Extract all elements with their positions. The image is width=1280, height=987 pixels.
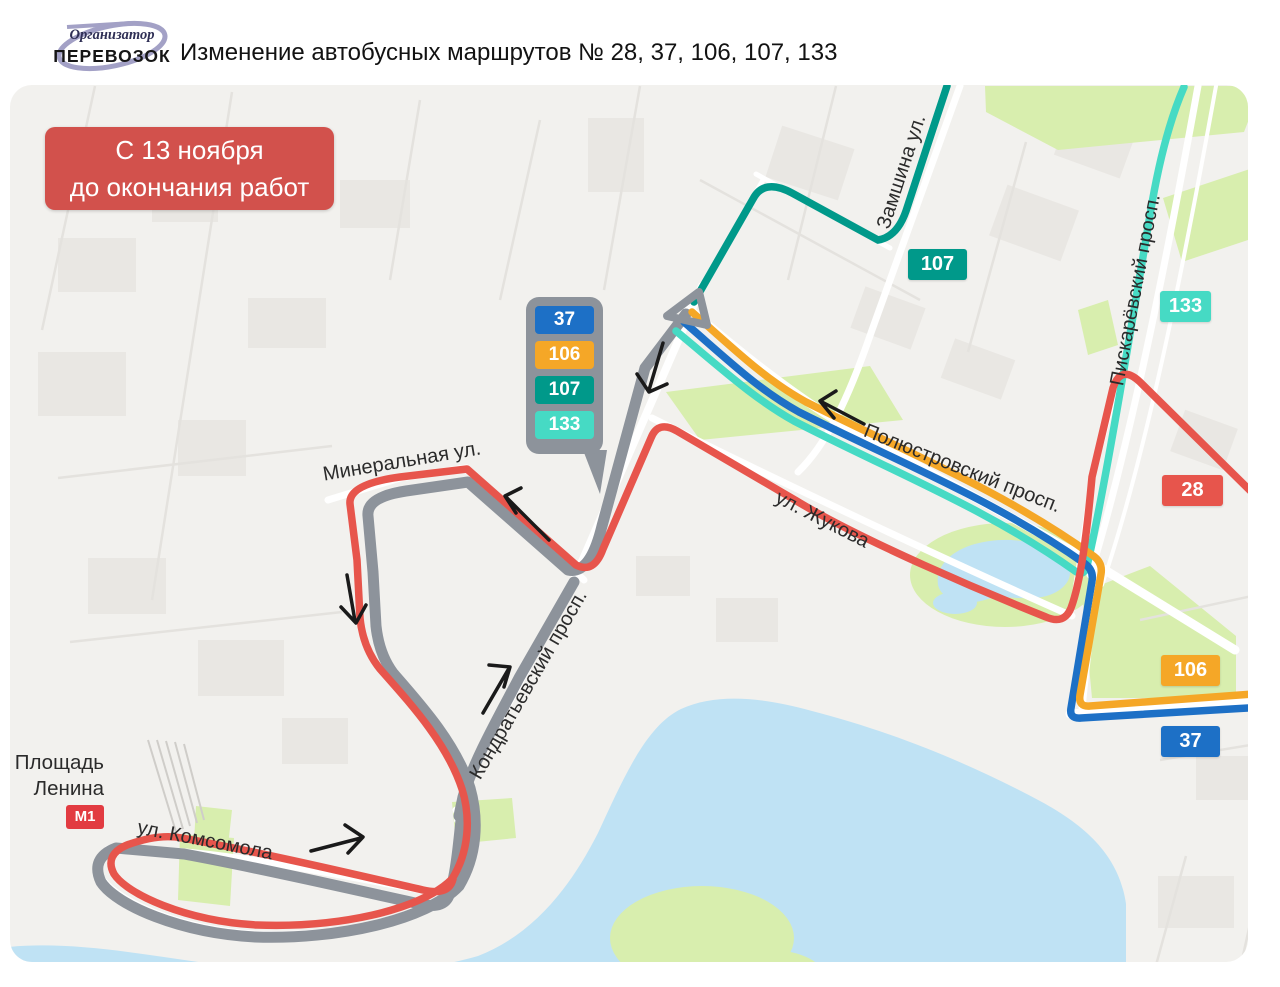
page-title: Изменение автобусных маршрутов № 28, 37,…: [180, 39, 837, 67]
place-line1: Площадь: [14, 750, 104, 776]
notice-line1: С 13 ноября: [45, 132, 334, 169]
map-badge-107: 107: [908, 249, 967, 280]
place-line2: Ленина: [14, 776, 104, 802]
map-badge-28: 28: [1162, 475, 1223, 506]
logo-line2: ПЕРЕВОЗОК: [52, 46, 172, 67]
place-lenina-label: Площадь Ленина М1: [14, 750, 104, 829]
logo-swirl-icon: [52, 10, 172, 78]
logo: Организатор ПЕРЕВОЗОК: [52, 10, 172, 78]
callout-route-37: 37: [535, 306, 594, 334]
callout-route-106: 106: [535, 341, 594, 369]
notice-badge: С 13 ноября до окончания работ: [45, 127, 334, 210]
map-badge-106: 106: [1161, 655, 1220, 686]
infographic-page: Организатор ПЕРЕВОЗОК Изменение автобусн…: [0, 0, 1280, 987]
callout-route-107: 107: [535, 376, 594, 404]
callout-route-133: 133: [535, 411, 594, 439]
routes-callout: 37 106 107 133: [526, 297, 603, 454]
metro-station-icon: М1: [66, 805, 104, 829]
map-badge-133: 133: [1160, 291, 1211, 322]
map-badge-37: 37: [1161, 726, 1220, 757]
notice-line2: до окончания работ: [45, 169, 334, 206]
logo-line1: Организатор: [52, 27, 172, 44]
